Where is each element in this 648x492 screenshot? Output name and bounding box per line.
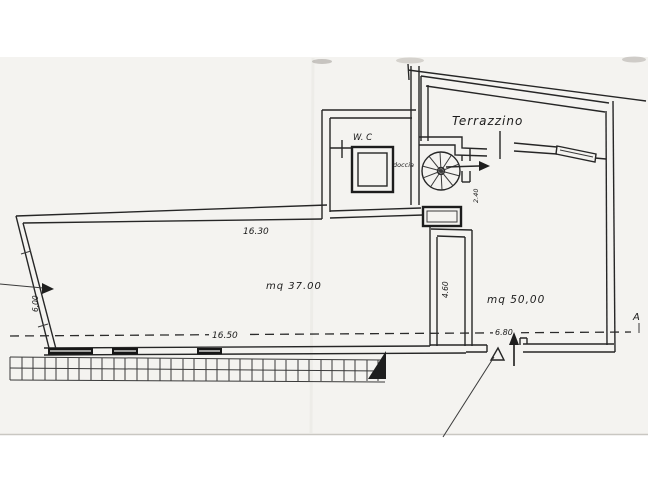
scan-smudge — [622, 57, 646, 63]
dim-middle-height: 4.60 — [441, 281, 450, 298]
doccia-label: doccia — [393, 161, 414, 169]
floor-plan-svg: A Terrazzino W. C doccia mq 37.00 mq 50,… — [0, 0, 648, 492]
paper-crease — [311, 58, 313, 434]
paper-background — [0, 57, 648, 435]
dim-stair-passage: 2.40 — [472, 189, 480, 203]
paper-sheet — [0, 57, 648, 436]
scanned-floor-plan-page: A Terrazzino W. C doccia mq 37.00 mq 50,… — [0, 0, 648, 492]
dim-left-height: 6.00 — [31, 295, 40, 312]
scan-smudge — [396, 58, 424, 64]
boundary-tick — [408, 64, 409, 80]
terrazzino-label: Terrazzino — [452, 114, 523, 128]
right-room-area-label: mq 50,00 — [487, 294, 545, 306]
dim-entry-width: 6.80 — [495, 328, 513, 337]
section-marker-a: A — [632, 312, 640, 323]
wc-label: W. C — [353, 133, 372, 143]
dim-top-width: 16.30 — [243, 227, 269, 237]
left-room-area-label: mq 37.00 — [266, 281, 322, 292]
dim-bottom-width: 16.50 — [212, 331, 238, 341]
scan-smudge — [312, 59, 332, 64]
